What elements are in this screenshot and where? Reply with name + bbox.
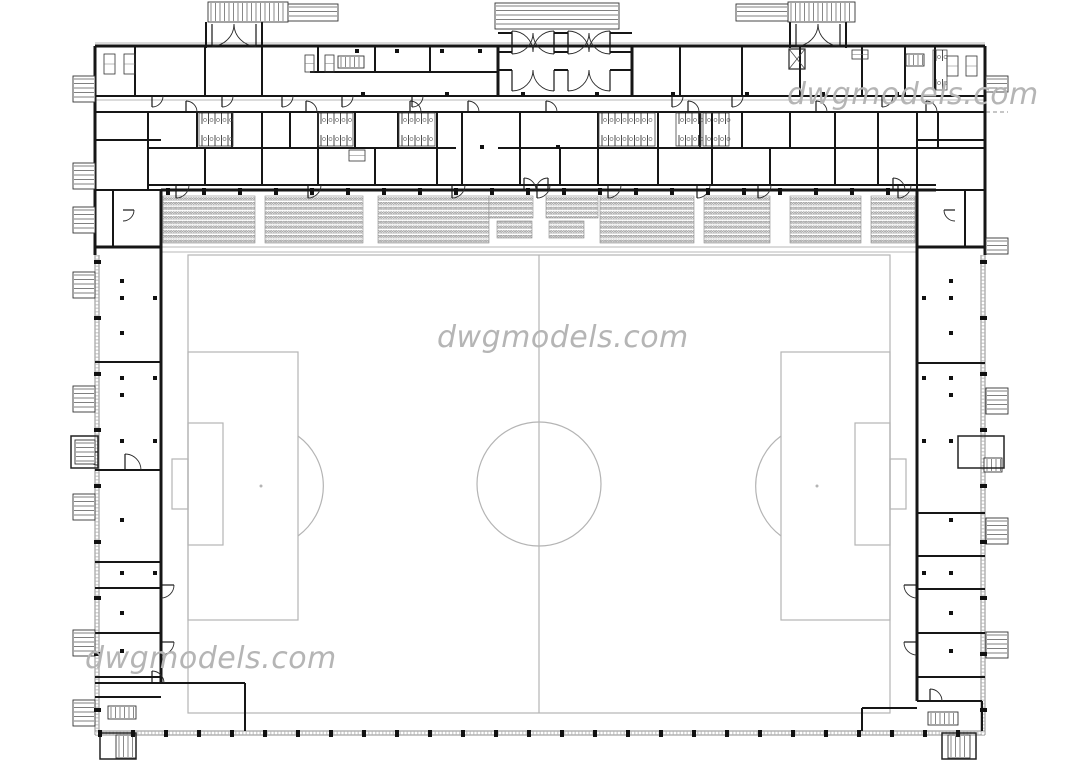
floor-plan-canvas: dwgmodels.com dwgmodels.com dwgmodels.co… <box>0 0 1080 760</box>
building-walls <box>95 22 985 731</box>
watermark-bottom-left: dwgmodels.com <box>85 641 337 676</box>
cad-floor-plan-stadium: dwgmodels.com dwgmodels.com dwgmodels.co… <box>0 0 1080 760</box>
watermark-top-right: dwgmodels.com <box>787 77 1039 112</box>
tribune-seating-rows <box>163 196 915 243</box>
watermark-center: dwgmodels.com <box>437 320 689 355</box>
watermarks: dwgmodels.com dwgmodels.com dwgmodels.co… <box>85 77 1039 676</box>
